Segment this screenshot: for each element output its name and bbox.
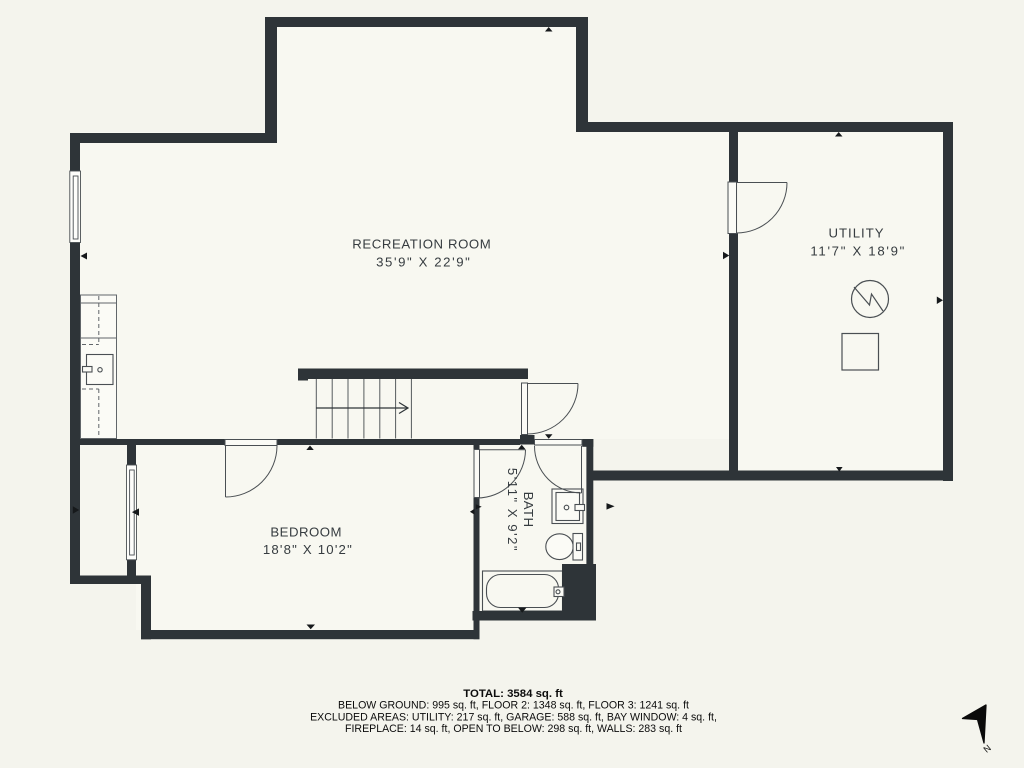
svg-text:FIREPLACE: 14 sq. ft, OPEN TO: FIREPLACE: 14 sq. ft, OPEN TO BELOW: 298… <box>345 723 682 735</box>
svg-text:BEDROOM: BEDROOM <box>270 524 342 539</box>
svg-text:EXCLUDED AREAS: UTILITY: 217 s: EXCLUDED AREAS: UTILITY: 217 sq. ft, GAR… <box>310 711 717 723</box>
svg-text:18'8" X 10'2": 18'8" X 10'2" <box>263 542 353 557</box>
svg-text:BATH: BATH <box>521 492 536 528</box>
svg-text:5'11" X 9'2": 5'11" X 9'2" <box>505 468 520 552</box>
svg-text:UTILITY: UTILITY <box>828 226 884 241</box>
svg-text:11'7" X 18'9": 11'7" X 18'9" <box>810 244 906 259</box>
svg-text:35'9" X 22'9": 35'9" X 22'9" <box>376 255 471 270</box>
svg-text:BELOW GROUND: 995 sq. ft, FLOO: BELOW GROUND: 995 sq. ft, FLOOR 2: 1348 … <box>338 700 689 712</box>
svg-text:RECREATION ROOM: RECREATION ROOM <box>352 237 491 252</box>
svg-text:TOTAL: 3584 sq. ft: TOTAL: 3584 sq. ft <box>463 688 563 700</box>
